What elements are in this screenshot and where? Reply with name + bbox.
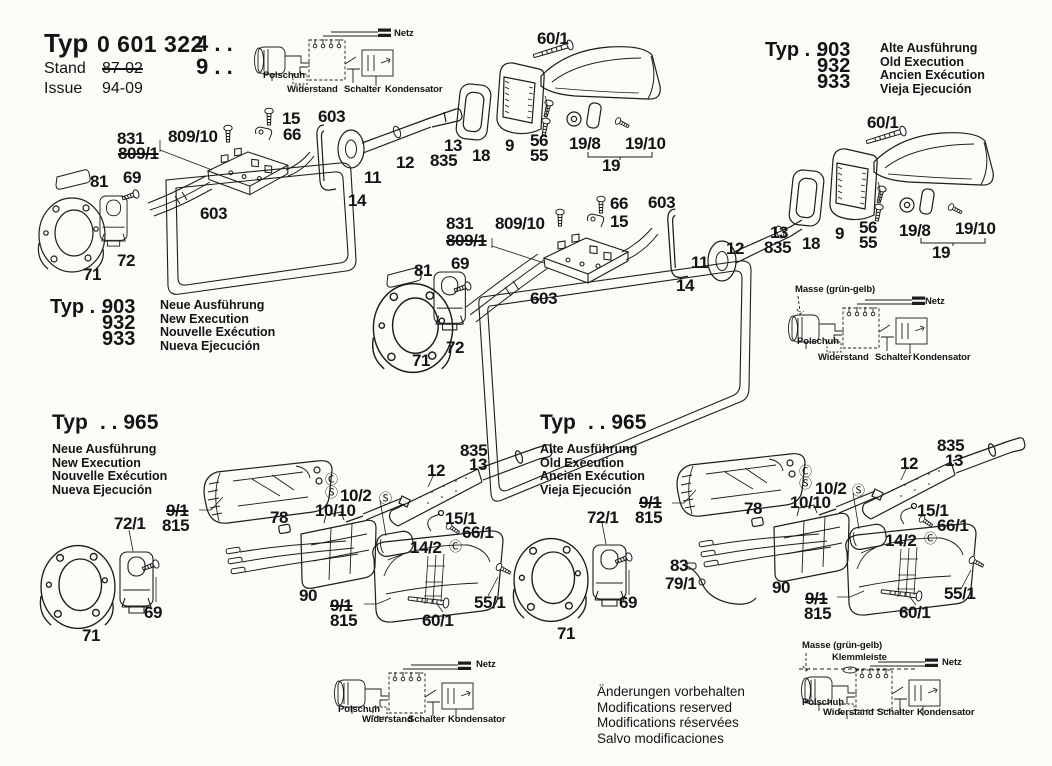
part-label-18: 18 [472,147,490,164]
part-label-603: 603 [200,205,227,222]
wire-label-Schalter: Schalter [408,715,445,725]
part-label-83: 83 [670,557,688,574]
part-label-815: 815 [635,509,662,526]
part-label-661: 66/1 [462,524,494,541]
part-label-72: 72 [117,252,135,269]
part-label-721: 72/1 [114,515,146,532]
part-label-80910: 809/10 [168,128,218,145]
part-label-: Ⓒ [924,532,937,545]
part-label-835: 835 [764,239,791,256]
part-label-815: 815 [330,612,357,629]
part-label-603: 603 [318,108,345,125]
part-label-69: 69 [144,604,162,621]
part-label-: Ⓒ [449,540,462,553]
part-label-12: 12 [900,455,918,472]
wire-label-Schalter: Schalter [344,85,381,95]
part-label-: Ⓢ [325,486,338,499]
part-label-55: 55 [859,234,877,251]
typ-label: Typ [540,412,576,433]
part-label-815: 815 [162,517,189,534]
typ-code: . . 965 [588,412,646,433]
part-label-102: 10/2 [815,480,847,497]
wire-label-Schalter: Schalter [877,708,914,718]
wire-label-Netz: Netz [925,297,945,307]
wire-label-Netz: Netz [394,29,414,39]
typ-label: Typ . . [50,297,106,317]
part-label-90: 90 [772,579,790,596]
part-label-66: 66 [610,195,628,212]
wire-label-Kondensator: Kondensator [917,708,975,718]
part-label-13: 13 [945,452,963,469]
part-label-: Ⓢ [379,492,392,505]
issue-label: Issue [44,81,82,97]
part-label-78: 78 [744,500,762,517]
part-label-71: 71 [557,625,575,642]
part-label-1910: 19/10 [625,135,666,152]
part-label-13: 13 [469,456,487,473]
typ-label: Typ [52,412,88,433]
part-label-69: 69 [619,594,637,611]
wire-label-Massegrün-gelb: Masse (grün-gelb) [795,285,875,295]
part-label-721: 72/1 [587,509,619,526]
part-label-8091: 809/1 [446,232,487,249]
wire-label-Widerstand: Widerstand [823,708,874,718]
part-label-19: 19 [932,244,950,261]
part-label-601: 60/1 [899,604,931,621]
typ-code: 933 [817,72,850,92]
part-label-14: 14 [676,277,694,294]
part-label-661: 66/1 [937,517,969,534]
part-label-1910: 19/10 [955,220,996,237]
part-label-198: 19/8 [569,135,601,152]
wire-label-Widerstand: Widerstand [362,715,413,725]
part-label-66: 66 [283,126,301,143]
part-label-11: 11 [691,254,708,271]
part-label-601: 60/1 [422,612,454,629]
typ-suffix-2: 9 . . [196,56,233,78]
typ-label: Typ . . [765,40,821,60]
typ-label: Typ [44,30,88,56]
part-label-: Ⓢ [799,477,812,490]
part-label-8091: 809/1 [118,145,159,162]
part-label-80910: 809/10 [495,215,545,232]
part-label-601: 60/1 [867,114,899,131]
wire-label-Polschuh: Polschuh [797,337,839,347]
wire-label-Widerstand: Widerstand [287,85,338,95]
execution-variant-text: Alte Ausführung Old Execution Ancien Exé… [540,443,645,497]
part-label-69: 69 [451,255,469,272]
typ-code: . . 965 [100,412,158,433]
part-label-15: 15 [610,213,628,230]
execution-variant-text: Alte Ausführung Old Execution Ancien Exé… [880,42,985,96]
part-label-: Ⓢ [852,484,865,497]
part-label-551: 55/1 [474,594,506,611]
modification-notes: Änderungen vorbehalten Modifications res… [597,684,745,746]
part-label-198: 19/8 [899,222,931,239]
wire-label-Netz: Netz [476,660,496,670]
part-label-71: 71 [412,352,430,369]
wiring-schematic-middle-right [789,296,928,357]
part-label-142: 14/2 [410,539,442,556]
part-label-71: 71 [83,266,101,283]
wire-label-Netz: Netz [942,658,962,668]
part-label-14: 14 [348,192,366,209]
wire-label-Widerstand: Widerstand [818,353,869,363]
part-label-815: 815 [804,605,831,622]
part-label-19: 19 [602,157,620,174]
stand-value: 87-02 [102,61,143,77]
execution-variant-text: Neue Ausführung New Execution Nouvelle E… [160,299,275,353]
part-label-81: 81 [90,173,108,190]
wire-label-Schalter: Schalter [875,353,912,363]
part-label-72: 72 [446,339,464,356]
part-label-71: 71 [82,627,100,644]
part-label-551: 55/1 [944,585,976,602]
wire-label-Massegrün-gelb: Masse (grün-gelb) [802,641,882,651]
part-label-831: 831 [446,215,473,232]
part-label-603: 603 [530,290,557,307]
wire-label-Kondensator: Kondensator [385,85,443,95]
part-label-78: 78 [270,509,288,526]
part-label-142: 14/2 [885,532,917,549]
typ-suffix-1: 4 . . [196,33,233,55]
part-label-11: 11 [364,169,381,186]
part-label-9: 9 [505,137,514,154]
typ-code: 933 [102,329,135,349]
part-label-81: 81 [414,262,432,279]
part-label-12: 12 [427,462,445,479]
part-label-102: 10/2 [340,487,372,504]
wire-label-Kondensator: Kondensator [448,715,506,725]
wire-label-Kondensator: Kondensator [913,353,971,363]
part-label-12: 12 [396,154,414,171]
parts-diagram-page: Typ 0 601 322 4 . . 9 . . Stand 87-02 Is… [0,0,1052,766]
stand-label: Stand [44,61,86,77]
part-label-12: 12 [726,240,744,257]
part-label-601: 60/1 [537,30,569,47]
issue-value: 94-09 [102,81,143,97]
wire-label-Klemmleiste: Klemmleiste [832,653,887,663]
part-label-55: 55 [530,147,548,164]
execution-variant-text: Neue Ausführung New Execution Nouvelle E… [52,443,167,497]
part-label-9: 9 [835,225,844,242]
part-label-69: 69 [123,169,141,186]
typ-number: 0 601 322 [97,33,204,56]
part-label-90: 90 [299,587,317,604]
part-label-603: 603 [648,194,675,211]
part-label-18: 18 [802,235,820,252]
wire-label-Polschuh: Polschuh [263,71,305,81]
part-label-835: 835 [430,152,457,169]
part-label-791: 79/1 [665,575,697,592]
